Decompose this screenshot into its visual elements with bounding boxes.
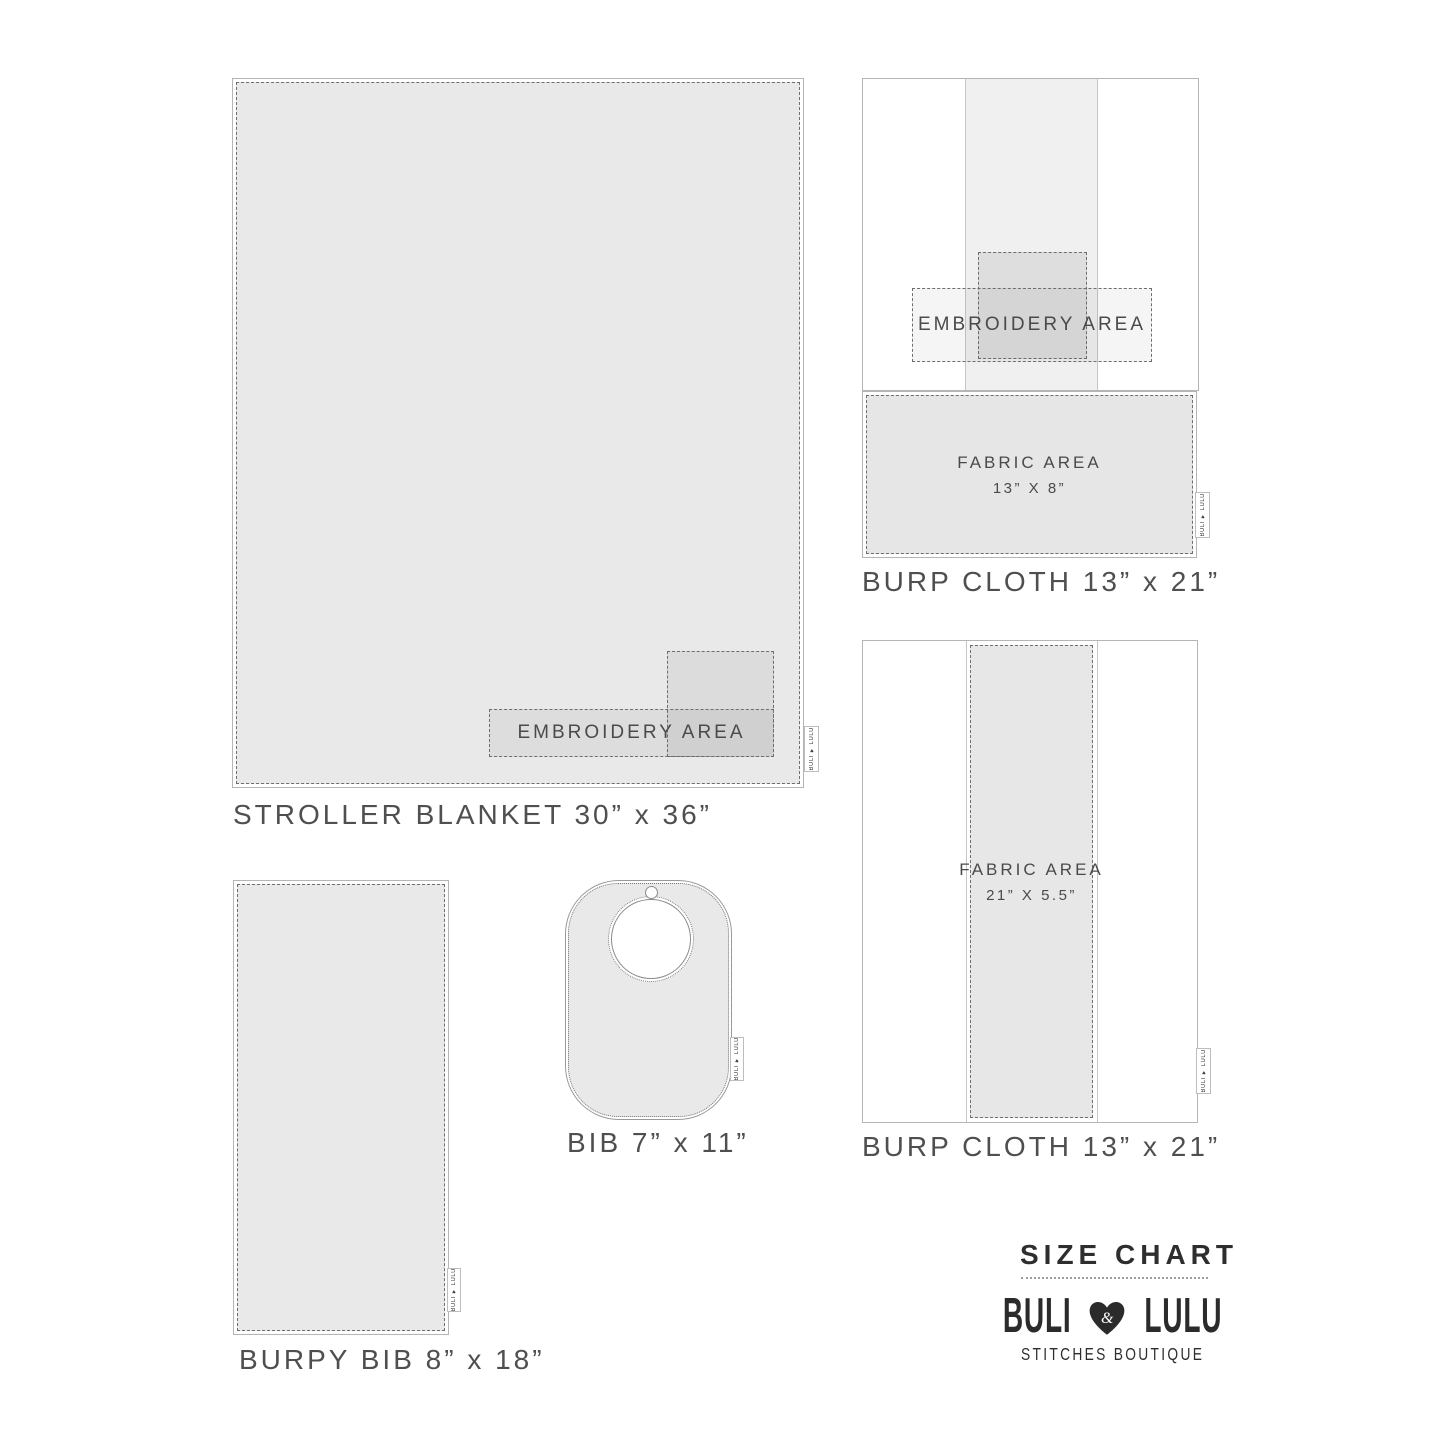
stroller-blanket-figure: EMBROIDERY AREA bbox=[232, 78, 804, 788]
brand-tag: BULI ♥ LULU bbox=[730, 1037, 744, 1081]
brand-tag: BULI ♥ LULU bbox=[1196, 1048, 1211, 1094]
buli-lulu-logo: BULI & LULU bbox=[1008, 1290, 1218, 1342]
stroller-blanket-label: STROLLER BLANKET 30” x 36” bbox=[233, 799, 712, 831]
size-chart-title: SIZE CHART bbox=[1020, 1239, 1238, 1271]
bib-figure bbox=[565, 880, 732, 1120]
burpy-bib-label: BURPY BIB 8” x 18” bbox=[239, 1344, 545, 1376]
burp-cloth-embroidery-area: EMBROIDERY AREA bbox=[912, 288, 1152, 362]
burp-cloth-open-figure: FABRIC AREA 21” X 5.5” bbox=[862, 640, 1198, 1123]
size-chart-canvas: EMBROIDERY AREA BULI ♥ LULU STROLLER BLA… bbox=[0, 0, 1445, 1445]
bib-neck-hole bbox=[608, 896, 694, 982]
burp-cloth-folded-figure: EMBROIDERY AREA bbox=[862, 78, 1199, 391]
logo-ampersand: & bbox=[1101, 1310, 1114, 1327]
stroller-blanket-fabric: EMBROIDERY AREA bbox=[236, 82, 800, 784]
burpy-bib-fabric bbox=[237, 884, 445, 1331]
brand-tag: BULI ♥ LULU bbox=[1195, 492, 1210, 538]
burp-cloth-open-label: BURP CLOTH 13” x 21” bbox=[862, 1131, 1220, 1163]
brand-tag: BULI ♥ LULU bbox=[447, 1268, 461, 1312]
burpy-bib-figure bbox=[233, 880, 449, 1335]
burp-cloth-open-fabric-area: FABRIC AREA 21” X 5.5” bbox=[970, 645, 1093, 1118]
embroidery-area-label: EMBROIDERY AREA bbox=[517, 722, 745, 744]
embroidery-area-label: EMBROIDERY AREA bbox=[918, 314, 1146, 336]
logo-word-buli: BULI bbox=[1002, 1288, 1071, 1343]
burp-cloth-folded-label: BURP CLOTH 13” x 21” bbox=[862, 566, 1220, 598]
stroller-blanket-embroidery-area: EMBROIDERY AREA bbox=[489, 709, 774, 757]
fabric-area-text: FABRIC AREA 13” X 8” bbox=[957, 453, 1101, 497]
bib-snap-button bbox=[645, 886, 658, 899]
logo-word-lulu: LULU bbox=[1144, 1288, 1222, 1343]
brand-tag: BULI ♥ LULU bbox=[804, 726, 819, 772]
divider bbox=[1021, 1277, 1208, 1279]
fabric-area-text: FABRIC AREA 21” X 5.5” bbox=[959, 860, 1103, 904]
bib-label: BIB 7” x 11” bbox=[567, 1127, 749, 1159]
logo-subtitle: STITCHES BOUTIQUE bbox=[1008, 1346, 1218, 1364]
heart-icon: & bbox=[1087, 1299, 1127, 1336]
burp-cloth-folded-fabric-area: FABRIC AREA 13” X 8” bbox=[862, 391, 1197, 558]
